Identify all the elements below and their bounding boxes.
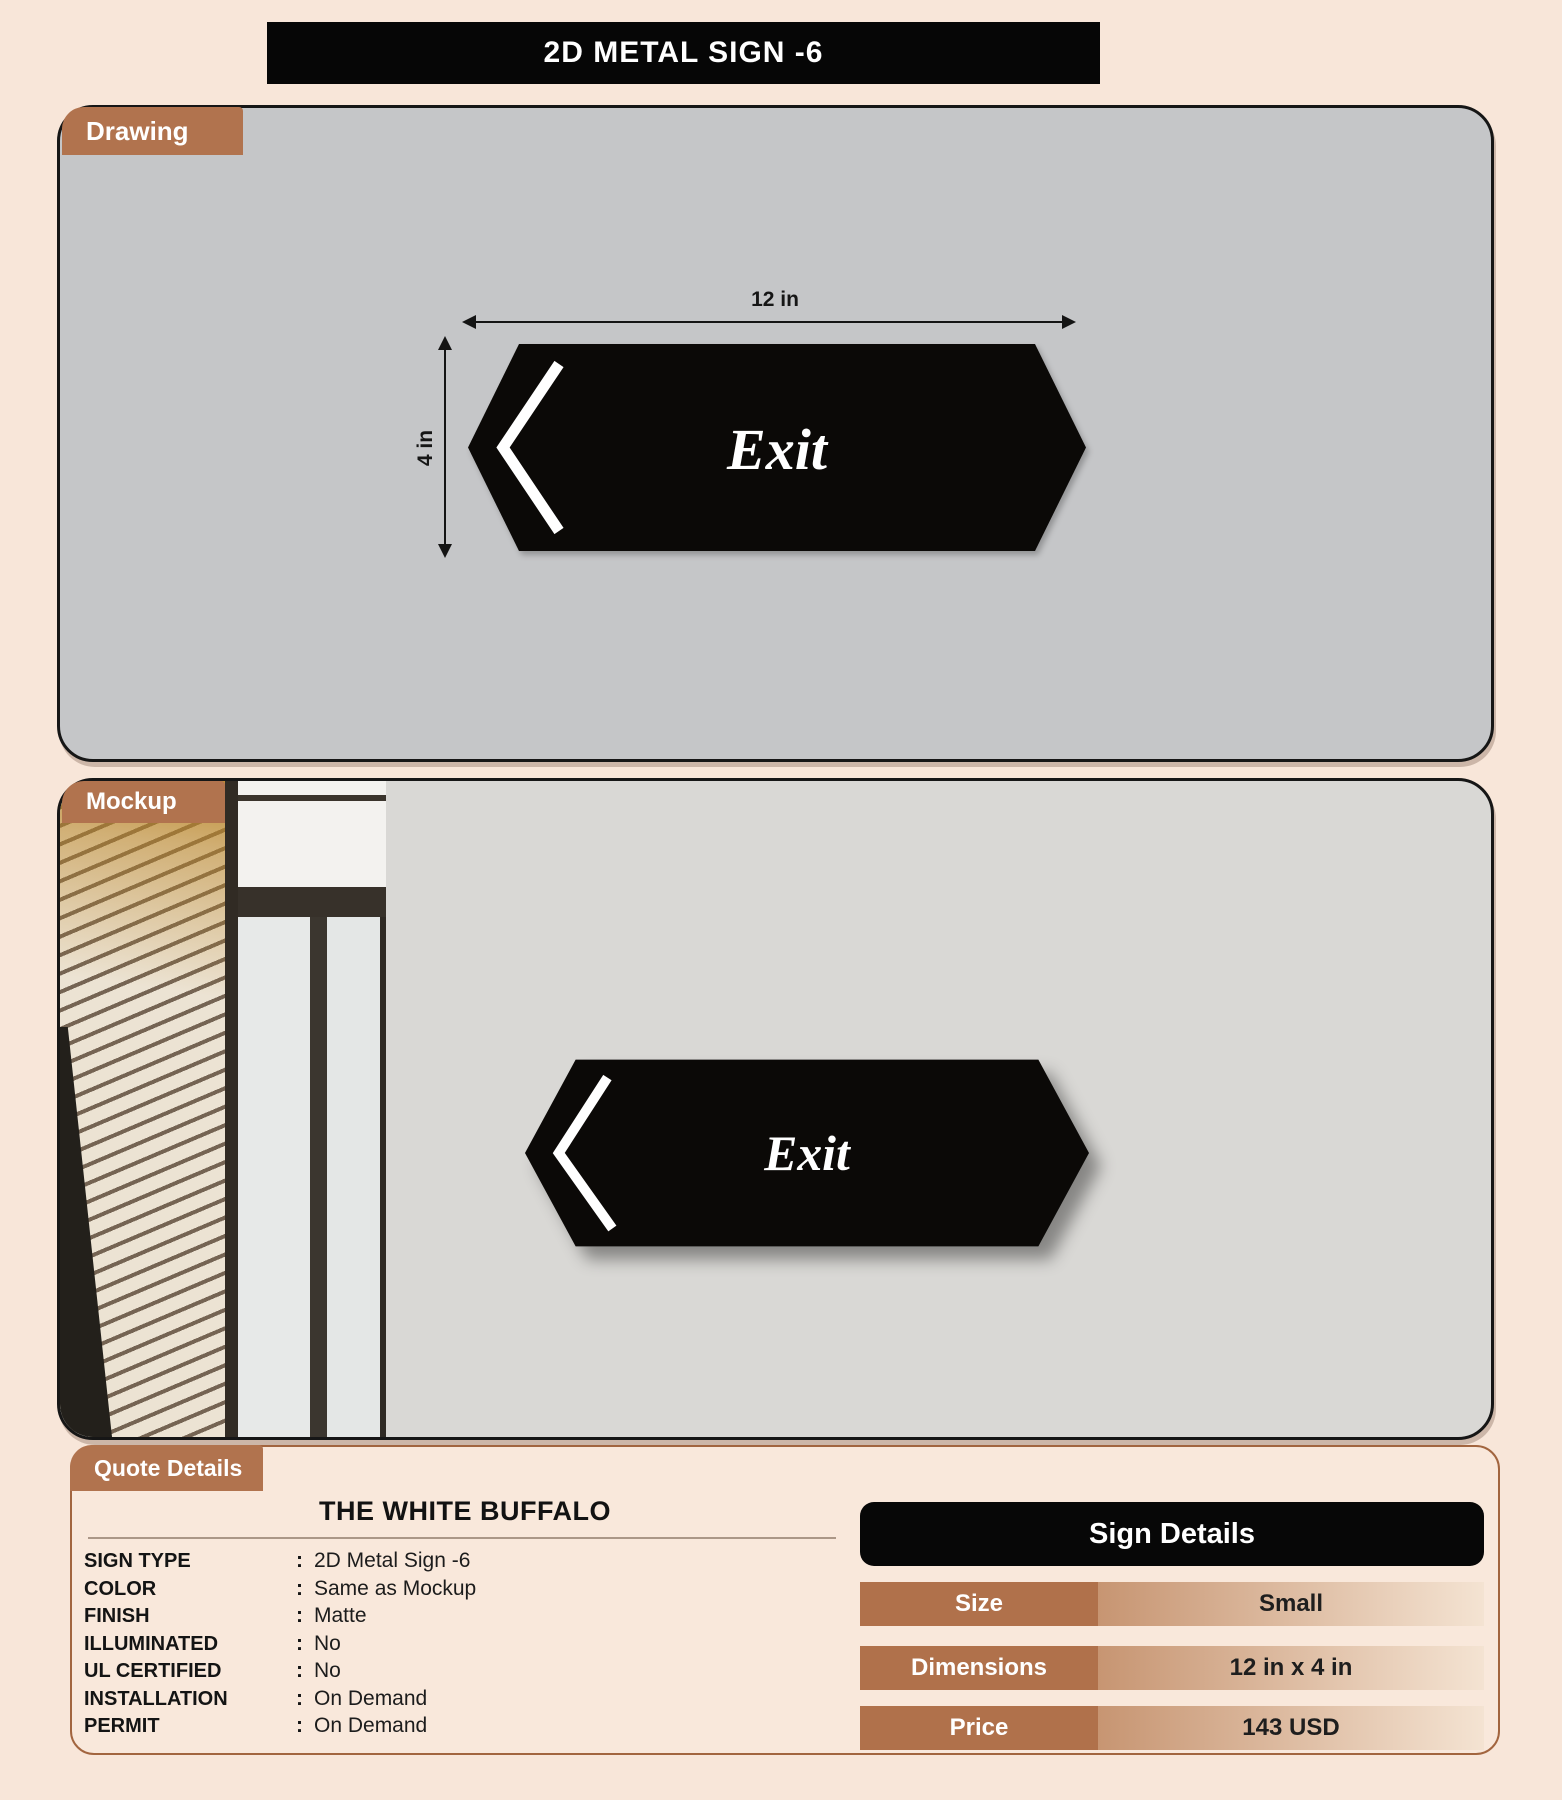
- sign-details-title: Sign Details: [1089, 1518, 1255, 1551]
- field-label: SIGN TYPE: [84, 1550, 296, 1573]
- row-label: Price: [860, 1706, 1098, 1750]
- mockup-sign-graphic: Exit: [524, 1058, 1090, 1248]
- width-dimension-label: 12 in: [720, 288, 830, 312]
- door-lintel-beam: [238, 887, 386, 917]
- company-name: THE WHITE BUFFALO: [120, 1496, 810, 1527]
- field-colon: :: [296, 1549, 314, 1573]
- width-arrowhead-left-icon: [462, 315, 476, 329]
- quote-field-row: FINISH : Matte: [84, 1604, 804, 1632]
- field-value: Same as Mockup: [314, 1577, 804, 1601]
- height-dimension-line: [444, 348, 446, 548]
- sign-details-header: Sign Details: [860, 1502, 1484, 1566]
- height-arrowhead-down-icon: [438, 544, 452, 558]
- quote-field-row: ILLUMINATED : No: [84, 1632, 804, 1660]
- drawing-sign-text: Exit: [726, 417, 829, 482]
- height-dimension-label: 4 in: [414, 398, 438, 498]
- drawing-section-tab: Drawing: [62, 107, 243, 155]
- quote-details-tab: Quote Details: [70, 1445, 263, 1491]
- glass-door-panes: [238, 917, 386, 1437]
- field-label: ILLUMINATED: [84, 1633, 296, 1656]
- drawing-tab-label: Drawing: [86, 116, 189, 147]
- sign-details-row-size: Size Small: [860, 1582, 1484, 1626]
- field-value: On Demand: [314, 1714, 804, 1738]
- quote-sheet-page: 2D METAL SIGN -6 Drawing 12 in 4 in Exit…: [0, 0, 1562, 1800]
- field-colon: :: [296, 1632, 314, 1656]
- width-dimension-line: [474, 321, 1064, 323]
- quote-field-row: UL CERTIFIED : No: [84, 1659, 804, 1687]
- field-colon: :: [296, 1659, 314, 1683]
- field-label: PERMIT: [84, 1715, 296, 1738]
- door-frame-column: [225, 781, 238, 1437]
- quote-field-list: SIGN TYPE : 2D Metal Sign -6 COLOR : Sam…: [84, 1549, 804, 1742]
- quote-field-row: INSTALLATION : On Demand: [84, 1687, 804, 1715]
- field-label: FINISH: [84, 1605, 296, 1628]
- field-value: 2D Metal Sign -6: [314, 1549, 804, 1573]
- field-label: COLOR: [84, 1578, 296, 1601]
- field-label: UL CERTIFIED: [84, 1660, 296, 1683]
- page-title-bar: 2D METAL SIGN -6: [267, 22, 1100, 84]
- interior-photo: [60, 781, 386, 1437]
- sign-details-row-price: Price 143 USD: [860, 1706, 1484, 1750]
- ceiling-trim-line: [238, 795, 386, 801]
- width-arrowhead-right-icon: [1062, 315, 1076, 329]
- sign-details-row-dimensions: Dimensions 12 in x 4 in: [860, 1646, 1484, 1690]
- field-value: No: [314, 1659, 804, 1683]
- row-label: Dimensions: [860, 1646, 1098, 1690]
- field-label: INSTALLATION: [84, 1688, 296, 1711]
- quote-tab-label: Quote Details: [94, 1455, 242, 1482]
- field-value: On Demand: [314, 1687, 804, 1711]
- drawing-sign-graphic: Exit: [467, 343, 1087, 552]
- row-label: Size: [860, 1582, 1098, 1626]
- quote-field-row: SIGN TYPE : 2D Metal Sign -6: [84, 1549, 804, 1577]
- mockup-section-tab: Mockup: [62, 781, 225, 823]
- company-underline: [88, 1537, 836, 1539]
- field-colon: :: [296, 1604, 314, 1628]
- page-title: 2D METAL SIGN -6: [544, 36, 824, 70]
- row-value: 12 in x 4 in: [1098, 1646, 1484, 1690]
- quote-field-row: PERMIT : On Demand: [84, 1714, 804, 1742]
- mockup-tab-label: Mockup: [86, 788, 177, 816]
- field-colon: :: [296, 1687, 314, 1711]
- field-colon: :: [296, 1714, 314, 1738]
- field-value: Matte: [314, 1604, 804, 1628]
- row-value: 143 USD: [1098, 1706, 1484, 1750]
- quote-field-row: COLOR : Same as Mockup: [84, 1577, 804, 1605]
- mockup-sign-text: Exit: [763, 1126, 852, 1181]
- field-colon: :: [296, 1577, 314, 1601]
- row-value: Small: [1098, 1582, 1484, 1626]
- height-arrowhead-up-icon: [438, 336, 452, 350]
- field-value: No: [314, 1632, 804, 1656]
